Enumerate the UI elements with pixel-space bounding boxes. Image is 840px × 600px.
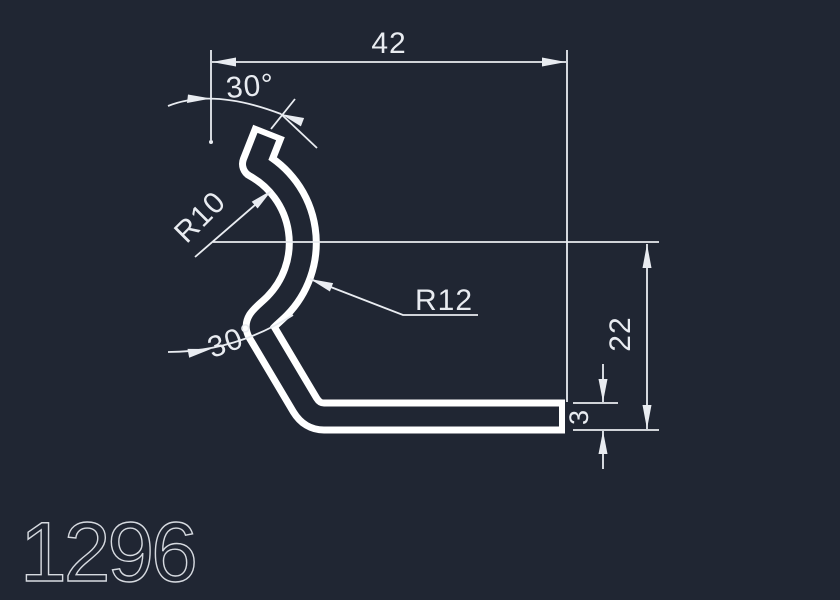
arrow-down-icon (643, 405, 652, 429)
dim-height-label: 22 (604, 316, 637, 351)
part-profile (256, 131, 565, 417)
arrow-thickness-top-icon (599, 379, 608, 402)
dim-angle-top: 30° (168, 68, 317, 148)
drawing-svg: 42 30° R10 R12 30° (0, 0, 840, 600)
part-number: 1296 (20, 505, 195, 599)
arrow-up-icon (643, 244, 652, 268)
dim-radius-inner: R10 (168, 185, 272, 257)
dim-radius-outer: R12 (310, 279, 478, 317)
radius-r12-label: R12 (415, 284, 473, 317)
dim-thickness-label: 3 (564, 409, 594, 425)
arrow-r12-icon (310, 279, 333, 292)
arrow-thickness-bottom-icon (599, 431, 608, 454)
arrow-arc-left-icon (187, 95, 211, 104)
extension-line-endpoint-dot (209, 140, 213, 144)
arrow-arc-bottom-icon (188, 349, 212, 358)
radius-r10-label: R10 (168, 185, 232, 249)
dim-width-label: 42 (371, 27, 406, 60)
cad-canvas[interactable]: 42 30° R10 R12 30° (0, 0, 840, 600)
dim-angle-top-label: 30° (225, 68, 276, 105)
arrow-right-icon (542, 58, 566, 67)
arrow-left-icon (212, 58, 236, 67)
dim-thickness: 3 (564, 364, 618, 469)
